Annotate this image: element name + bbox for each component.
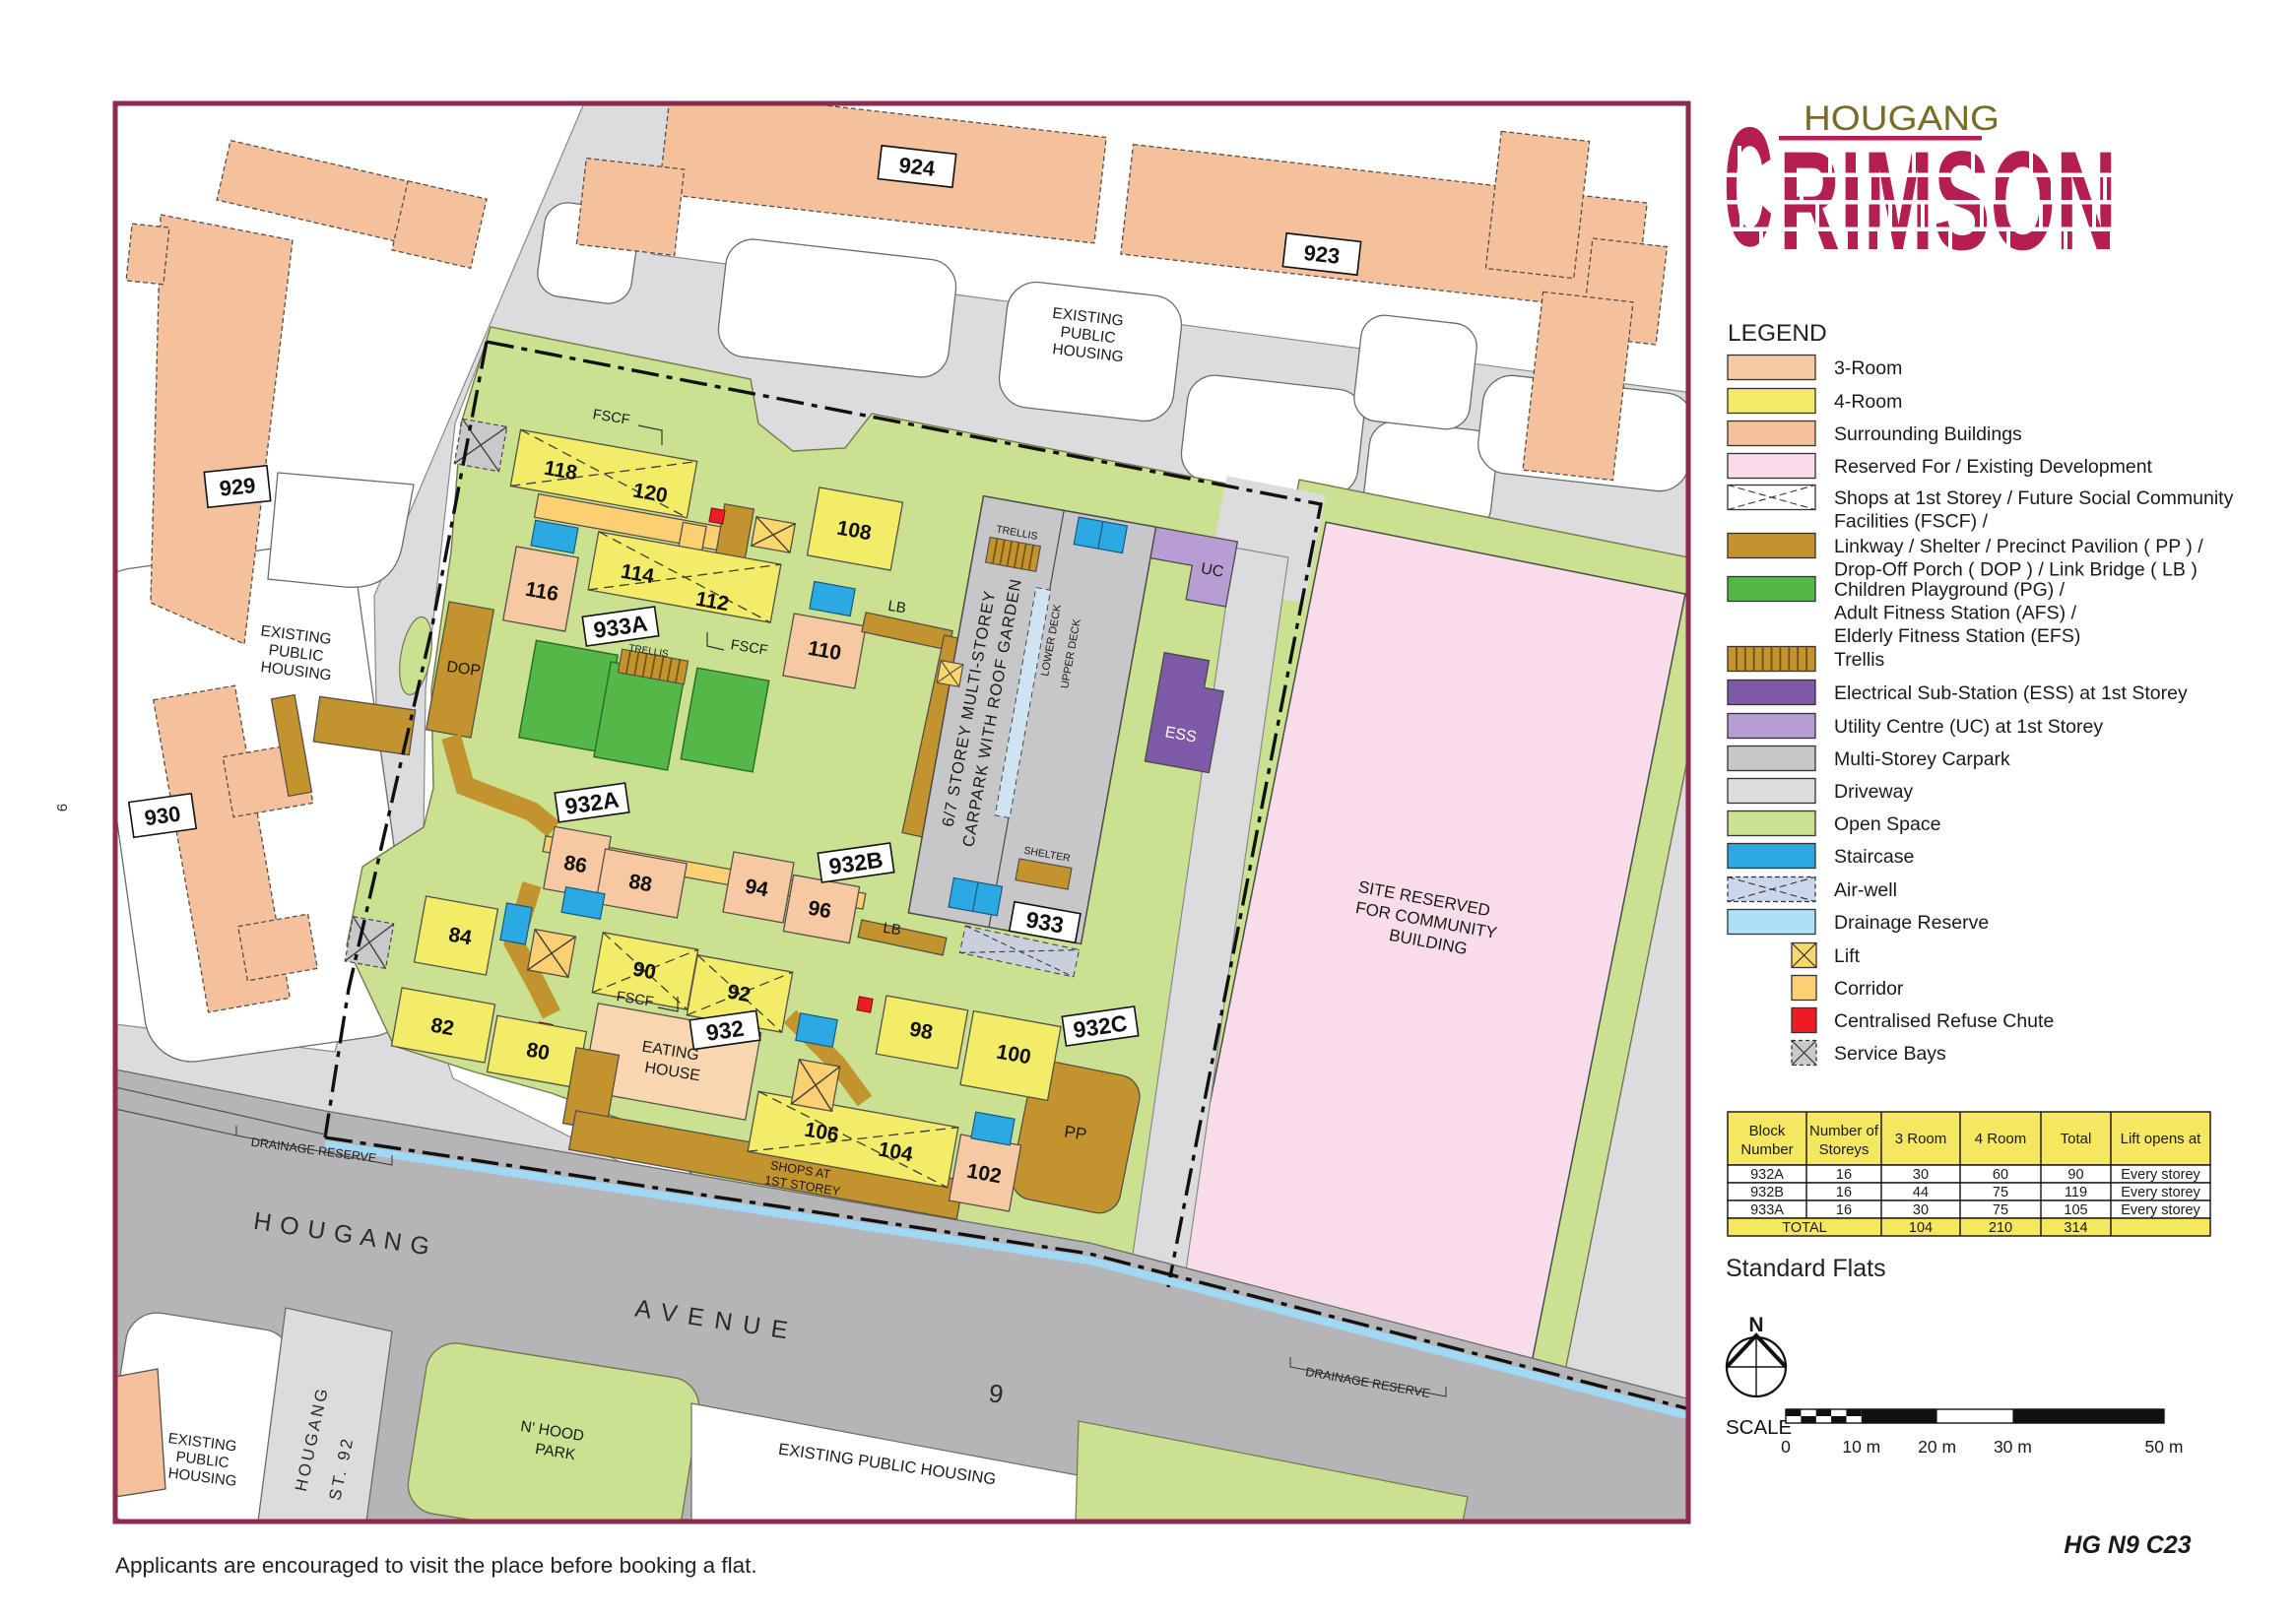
svg-text:50 m: 50 m	[2145, 1437, 2184, 1457]
svg-text:90: 90	[2067, 1167, 2083, 1183]
svg-text:LEGEND: LEGEND	[1728, 320, 1827, 347]
svg-text:Drop-Off Porch ( DOP ) / Link: Drop-Off Porch ( DOP ) / Link Bridge ( L…	[1834, 558, 2198, 580]
svg-text:30 m: 30 m	[1994, 1437, 2032, 1457]
svg-text:16: 16	[1836, 1167, 1852, 1183]
svg-text:96: 96	[807, 897, 833, 924]
svg-text:Driveway: Driveway	[1834, 781, 1913, 803]
svg-text:Every storey: Every storey	[2121, 1202, 2200, 1218]
svg-text:Lift opens at: Lift opens at	[2121, 1131, 2202, 1147]
svg-text:80: 80	[525, 1039, 552, 1066]
svg-text:82: 82	[429, 1014, 456, 1041]
svg-text:30: 30	[1913, 1202, 1929, 1218]
svg-text:3-Room: 3-Room	[1834, 357, 1902, 379]
svg-text:Electrical Sub-Station (ESS) a: Electrical Sub-Station (ESS) at 1st Stor…	[1834, 682, 2188, 704]
svg-text:Corridor: Corridor	[1834, 978, 1904, 1000]
svg-text:10 m: 10 m	[1842, 1437, 1880, 1457]
svg-text:930: 930	[143, 801, 182, 830]
svg-text:Surrounding Buildings: Surrounding Buildings	[1834, 423, 2022, 445]
svg-text:Facilities (FSCF) /: Facilities (FSCF) /	[1834, 510, 1989, 532]
svg-text:HG N9 C23: HG N9 C23	[2064, 1531, 2191, 1559]
svg-text:75: 75	[1993, 1185, 2008, 1200]
svg-text:75: 75	[1993, 1202, 2008, 1218]
svg-text:60: 60	[1993, 1167, 2008, 1183]
svg-text:0: 0	[1781, 1437, 1791, 1457]
svg-text:LB: LB	[886, 598, 907, 617]
svg-text:Storeys: Storeys	[1819, 1141, 1870, 1158]
svg-text:314: 314	[2064, 1220, 2087, 1236]
svg-text:86: 86	[562, 852, 589, 878]
svg-text:119: 119	[2065, 1185, 2087, 1200]
svg-text:Reserved For / Existing Develo: Reserved For / Existing Development	[1834, 456, 2153, 478]
svg-text:Open Space: Open Space	[1834, 813, 1940, 835]
svg-text:88: 88	[627, 871, 654, 897]
svg-text:16: 16	[1836, 1202, 1852, 1218]
svg-text:Lift: Lift	[1834, 945, 1861, 967]
svg-text:Adult Fitness Station (AFS) /: Adult Fitness Station (AFS) /	[1834, 602, 2077, 623]
svg-text:Utility Centre (UC) at 1st Sto: Utility Centre (UC) at 1st Storey	[1834, 716, 2103, 738]
svg-text:92: 92	[726, 981, 753, 1007]
svg-text:Air-well: Air-well	[1834, 879, 1897, 901]
svg-text:LB: LB	[882, 920, 902, 940]
svg-text:16: 16	[1836, 1185, 1852, 1200]
svg-text:210: 210	[1989, 1220, 2012, 1236]
svg-text:Total: Total	[2061, 1131, 2092, 1147]
svg-text:44: 44	[1913, 1185, 1929, 1200]
svg-text:9: 9	[53, 804, 70, 811]
svg-text:SCALE: SCALE	[1726, 1416, 1792, 1439]
svg-text:N: N	[1748, 1314, 1763, 1336]
svg-text:Standard Flats: Standard Flats	[1726, 1255, 1886, 1282]
svg-text:933A: 933A	[1750, 1202, 1784, 1218]
svg-text:Every storey: Every storey	[2121, 1185, 2200, 1200]
svg-text:Service Bays: Service Bays	[1834, 1043, 1946, 1065]
svg-text:Centralised Refuse Chute: Centralised Refuse Chute	[1834, 1010, 2054, 1032]
svg-text:Drainage Reserve: Drainage Reserve	[1834, 912, 1989, 934]
svg-text:Elderly Fitness Station (EFS): Elderly Fitness Station (EFS)	[1834, 625, 2080, 647]
svg-text:Shops at 1st Storey / Future S: Shops at 1st Storey / Future Social Comm…	[1834, 487, 2234, 509]
svg-text:30: 30	[1913, 1167, 1929, 1183]
svg-text:924: 924	[897, 153, 937, 181]
svg-text:Every storey: Every storey	[2121, 1167, 2200, 1183]
svg-text:94: 94	[744, 875, 770, 902]
svg-text:105: 105	[2064, 1202, 2087, 1218]
svg-text:932A: 932A	[1750, 1167, 1784, 1183]
svg-text:Staircase: Staircase	[1834, 846, 1914, 868]
svg-text:104: 104	[1909, 1220, 1933, 1236]
svg-text:3 Room: 3 Room	[1895, 1131, 1947, 1147]
svg-text:Number: Number	[1740, 1141, 1793, 1158]
svg-text:98: 98	[908, 1018, 935, 1045]
svg-text:Multi-Storey Carpark: Multi-Storey Carpark	[1834, 748, 2010, 770]
svg-text:Block: Block	[1749, 1123, 1786, 1139]
svg-text:4-Room: 4-Room	[1834, 391, 1902, 413]
svg-text:4 Room: 4 Room	[1975, 1131, 2027, 1147]
svg-text:Linkway / Shelter / Precinct P: Linkway / Shelter / Precinct Pavilion ( …	[1834, 536, 2203, 557]
svg-text:20 m: 20 m	[1918, 1437, 1956, 1457]
svg-text:TOTAL: TOTAL	[1782, 1220, 1826, 1236]
svg-text:Children Playground (PG) /: Children Playground (PG) /	[1834, 579, 2066, 601]
svg-text:Applicants are encouraged to v: Applicants are encouraged to visit the p…	[115, 1553, 757, 1578]
svg-text:90: 90	[631, 958, 658, 985]
svg-text:932: 932	[704, 1015, 746, 1046]
svg-text:923: 923	[1302, 240, 1341, 269]
svg-text:PP: PP	[1063, 1122, 1087, 1143]
svg-text:932B: 932B	[1750, 1185, 1784, 1200]
svg-text:C: C	[1724, 93, 1773, 282]
svg-text:Trellis: Trellis	[1834, 649, 1885, 671]
svg-text:Number of: Number of	[1809, 1123, 1879, 1139]
svg-text:84: 84	[447, 924, 474, 950]
svg-text:929: 929	[218, 473, 256, 501]
